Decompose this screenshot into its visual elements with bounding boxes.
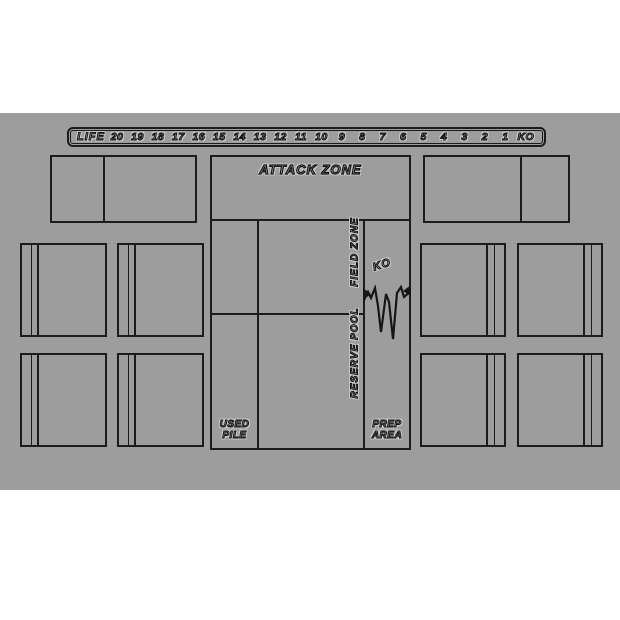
life-value-20[interactable]: 20 [107, 131, 127, 143]
life-value-12[interactable]: 12 [270, 131, 290, 143]
life-value-13[interactable]: 13 [250, 131, 270, 143]
life-value-7[interactable]: 7 [373, 131, 393, 143]
top-left-card-zone[interactable] [50, 155, 197, 223]
card-slot-tab-line [37, 245, 39, 335]
life-value-6[interactable]: 6 [393, 131, 413, 143]
card-slot-right-2[interactable] [517, 243, 603, 337]
card-slot-tab-line [128, 245, 129, 335]
card-slot-tab-line [134, 245, 136, 335]
life-value-17[interactable]: 17 [168, 131, 188, 143]
card-slot-tab-line [486, 355, 488, 445]
card-slot-left-4[interactable] [117, 353, 204, 447]
life-value-16[interactable]: 16 [189, 131, 209, 143]
life-value-18[interactable]: 18 [148, 131, 168, 143]
life-value-ko[interactable]: KO [516, 131, 536, 143]
life-track-label: LIFE [77, 131, 105, 143]
card-slot-tab-line [486, 245, 488, 335]
top-right-zone-divider [520, 157, 522, 221]
card-slot-left-2[interactable] [117, 243, 204, 337]
card-slot-tab-line [583, 245, 585, 335]
card-slot-right-4[interactable] [517, 353, 603, 447]
card-slot-tab-line [591, 355, 592, 445]
attack-zone-label: ATTACK ZONE [259, 162, 361, 177]
life-value-1[interactable]: 1 [495, 131, 515, 143]
playmat-background: LIFE 2019181716151413121110987654321KO [0, 113, 620, 490]
card-slot-left-1[interactable] [20, 243, 107, 337]
reserve-pool-label: RESERVE POOL [350, 308, 361, 399]
life-value-3[interactable]: 3 [454, 131, 474, 143]
card-slot-left-3[interactable] [20, 353, 107, 447]
card-slot-tab-line [31, 355, 32, 445]
ko-zone[interactable] [365, 219, 409, 289]
life-value-11[interactable]: 11 [291, 131, 311, 143]
card-slot-tab-line [134, 355, 136, 445]
life-track-values: 2019181716151413121110987654321KO [107, 131, 536, 143]
card-slot-tab-line [591, 245, 592, 335]
prep-area-label-line1: PREP [365, 419, 409, 430]
life-value-14[interactable]: 14 [229, 131, 249, 143]
top-right-card-zone[interactable] [423, 155, 570, 223]
life-track-inner-border: LIFE 2019181716151413121110987654321KO [70, 130, 543, 144]
life-value-5[interactable]: 5 [413, 131, 433, 143]
life-track: LIFE 2019181716151413121110987654321KO [67, 127, 546, 147]
used-pile-label-line2: PILE [212, 430, 257, 441]
used-pile-label-line1: USED [212, 419, 257, 430]
field-zone-label: FIELD ZONE [350, 217, 361, 286]
life-value-4[interactable]: 4 [434, 131, 454, 143]
used-pile-label: USED PILE [212, 419, 257, 441]
battle-area: ATTACK ZONE FIELD ZONE RESERVE POOL KO [210, 155, 411, 450]
card-slot-tab-line [128, 355, 129, 445]
field-zone[interactable] [259, 219, 363, 313]
life-value-15[interactable]: 15 [209, 131, 229, 143]
prep-area-label-line2: AREA [365, 430, 409, 441]
life-value-19[interactable]: 19 [127, 131, 147, 143]
card-slot-tab-line [37, 355, 39, 445]
life-value-2[interactable]: 2 [475, 131, 495, 143]
prep-area-label: PREP AREA [365, 419, 409, 441]
attack-zone[interactable]: ATTACK ZONE [212, 157, 409, 221]
life-value-10[interactable]: 10 [311, 131, 331, 143]
card-slot-tab-line [494, 245, 495, 335]
life-value-9[interactable]: 9 [332, 131, 352, 143]
life-value-8[interactable]: 8 [352, 131, 372, 143]
card-slot-right-3[interactable] [420, 353, 506, 447]
reserve-pool-zone[interactable] [259, 315, 363, 448]
card-slot-tab-line [31, 245, 32, 335]
ko-burst-icon [363, 285, 411, 345]
top-left-zone-divider [103, 157, 105, 221]
card-slot-tab-line [494, 355, 495, 445]
card-slot-right-1[interactable] [420, 243, 506, 337]
playmat-image: LIFE 2019181716151413121110987654321KO [0, 0, 620, 620]
card-slot-tab-line [583, 355, 585, 445]
